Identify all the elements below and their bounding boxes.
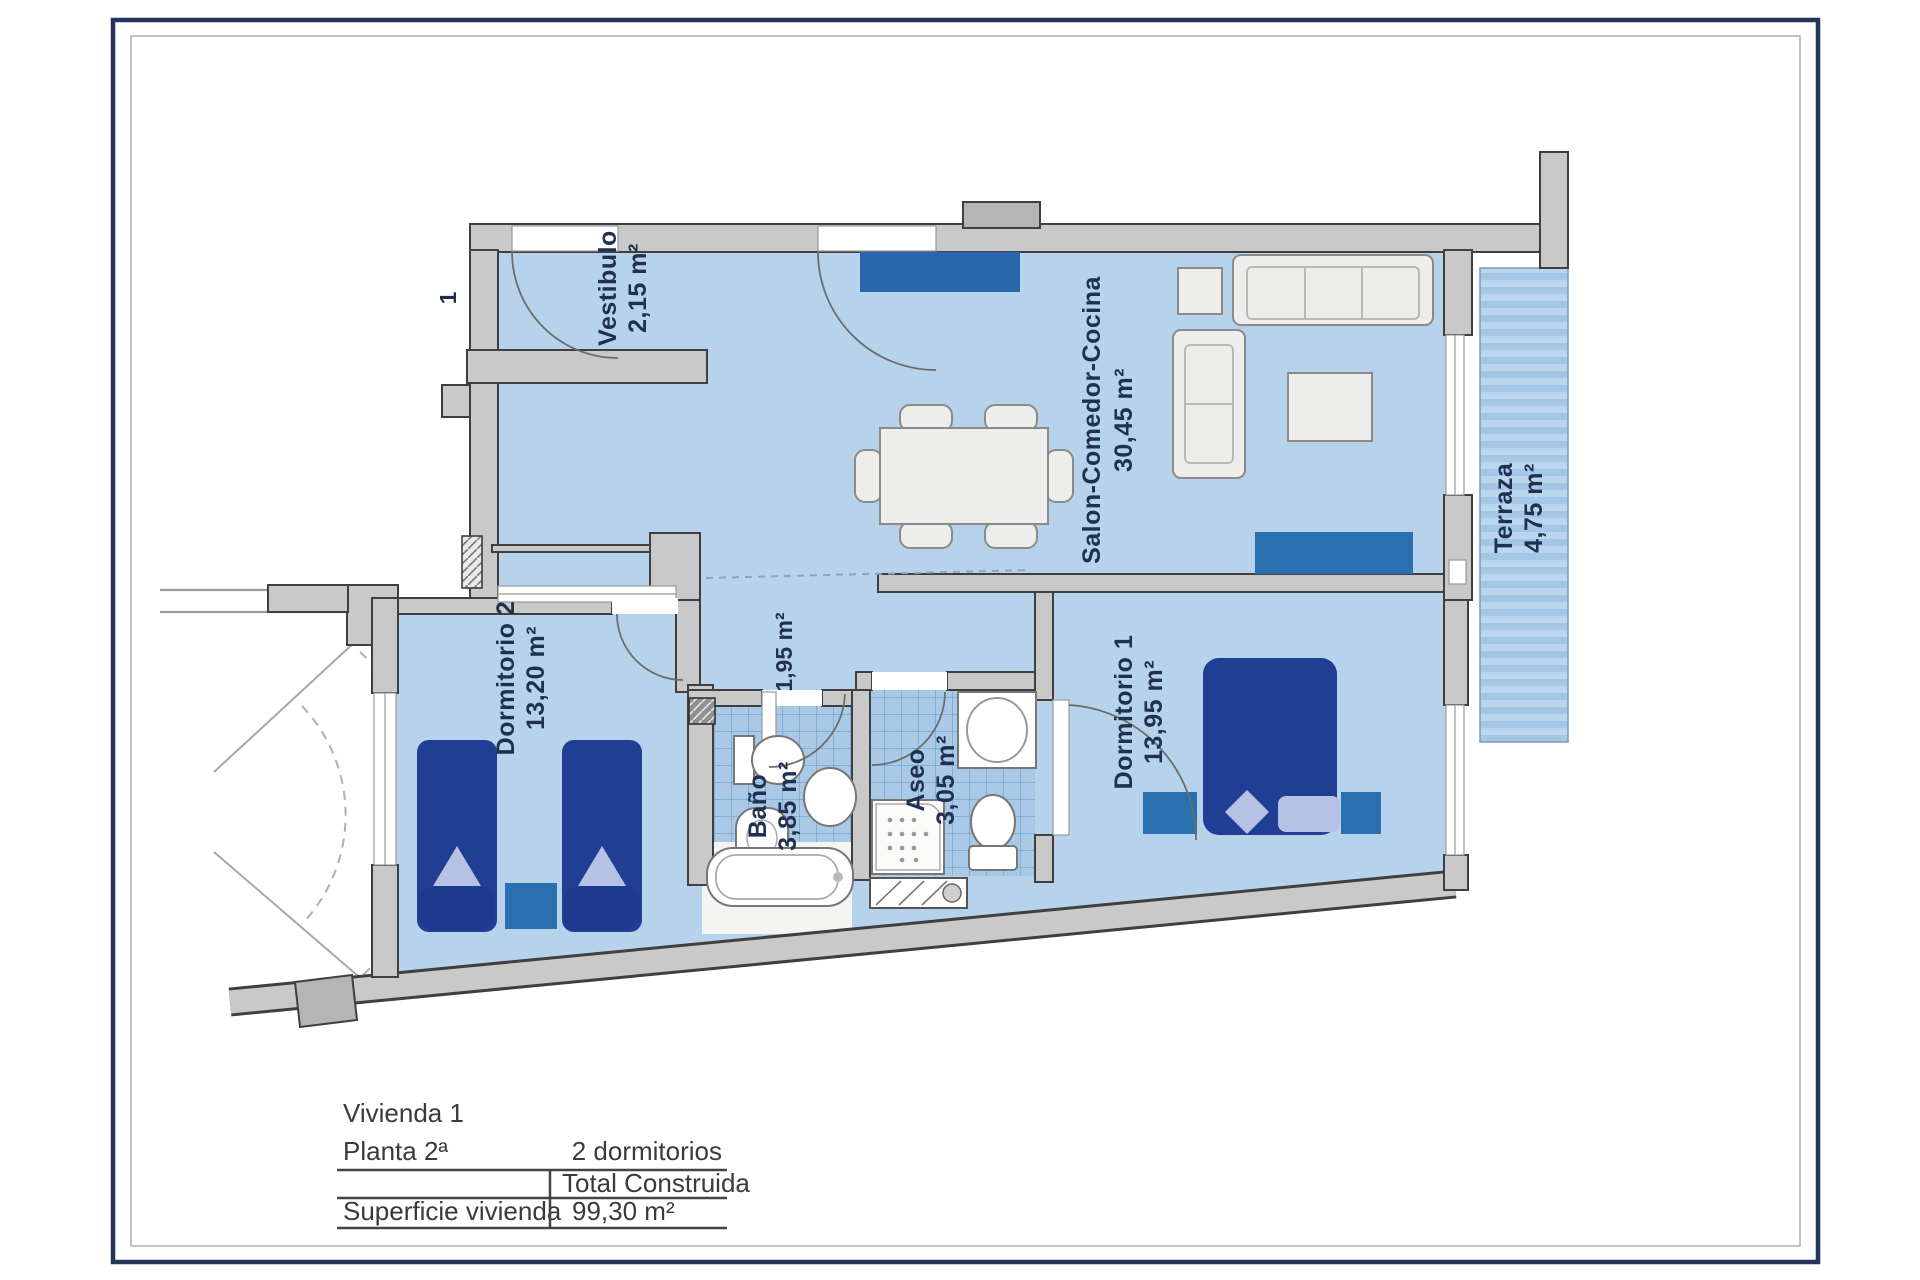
summary-floor: Planta 2ª: [343, 1136, 448, 1166]
pillow: [419, 886, 495, 930]
wall-segment: [1035, 592, 1053, 700]
floor-plan-sheet: 1 Vestibulo 2,15 m² Salon-Comedor-Cocina…: [0, 0, 1920, 1280]
label-terraza-area: 4,75 m²: [1520, 463, 1548, 553]
label-dormitorio2-name: Dormitorio 2: [492, 601, 520, 756]
label-pasillo-area: 1,95 m²: [771, 612, 797, 692]
armchair: [1173, 330, 1245, 478]
wall-segment: [372, 598, 398, 693]
chimney-block: [963, 202, 1040, 228]
chair: [855, 450, 882, 502]
summary-surface-label: Superficie vivienda: [343, 1196, 562, 1226]
table-top: [880, 428, 1048, 524]
toilet-bowl: [971, 795, 1015, 849]
chair: [985, 522, 1037, 548]
chair: [1046, 450, 1073, 502]
wall-segment: [1444, 600, 1468, 705]
wall-segment: [1035, 835, 1053, 882]
vent-duct: [870, 878, 967, 908]
door-leaf: [1053, 700, 1069, 835]
toilet-tank: [969, 846, 1017, 870]
summary-total-label: Total Construida: [562, 1168, 750, 1198]
summary-bedrooms: 2 dormitorios: [572, 1136, 722, 1166]
wall-segment: [1444, 855, 1468, 890]
label-terraza-name: Terraza: [1490, 462, 1518, 553]
label-aseo-name: Aseo: [902, 748, 930, 811]
label-dormitorio1-area: 13,95 m²: [1140, 660, 1168, 764]
label-aseo-area: 3,05 m²: [932, 735, 960, 825]
label-vestibulo-area: 2,15 m²: [624, 243, 652, 333]
label-salon-area: 30,45 m²: [1110, 368, 1138, 472]
wall-segment: [467, 350, 707, 383]
shaft: [462, 536, 482, 588]
sofa: [1233, 255, 1433, 325]
coffee-table: [1288, 373, 1372, 441]
kitchen-counter: [860, 252, 1020, 292]
sink-counter: [958, 692, 1036, 768]
side-table: [1178, 268, 1222, 314]
label-bano-name: Baño: [744, 774, 772, 839]
label-dormitorio1-name: Dormitorio 1: [1110, 635, 1138, 790]
pillow: [564, 886, 640, 930]
wall-segment: [856, 672, 872, 690]
label-bano-area: 3,85 m²: [774, 761, 802, 851]
summary-unit: Vivienda 1: [343, 1098, 464, 1128]
door-opening: [612, 598, 678, 614]
wall-segment: [1444, 250, 1472, 335]
sheet-number-label: 1: [435, 291, 461, 304]
tv-cabinet: [1255, 532, 1413, 574]
door-opening: [872, 672, 947, 690]
label-vestibulo-name: Vestibulo: [594, 230, 622, 346]
pillow: [1278, 796, 1340, 832]
wall-corner-block: [295, 975, 357, 1027]
nightstand: [1341, 792, 1381, 834]
summary-surface-value: 99,30 m²: [572, 1196, 675, 1226]
wall-nub: [442, 385, 470, 417]
sink: [804, 768, 856, 826]
wall-segment: [676, 600, 700, 692]
door-opening: [818, 226, 936, 251]
wall-segment: [1540, 152, 1568, 268]
terraza-deck: [1468, 268, 1568, 742]
nightstand: [505, 883, 557, 929]
wall-segment: [268, 585, 348, 612]
closet-wall: [492, 545, 650, 552]
chair: [900, 522, 952, 548]
label-salon-name: Salon-Comedor-Cocina: [1078, 276, 1106, 564]
wall-niche: [1449, 560, 1466, 584]
wall-segment: [372, 865, 398, 977]
shaft: [689, 698, 715, 724]
bathtub: [707, 848, 853, 906]
wall-segment: [878, 574, 1452, 592]
label-dormitorio2-area: 13,20 m²: [522, 626, 550, 730]
